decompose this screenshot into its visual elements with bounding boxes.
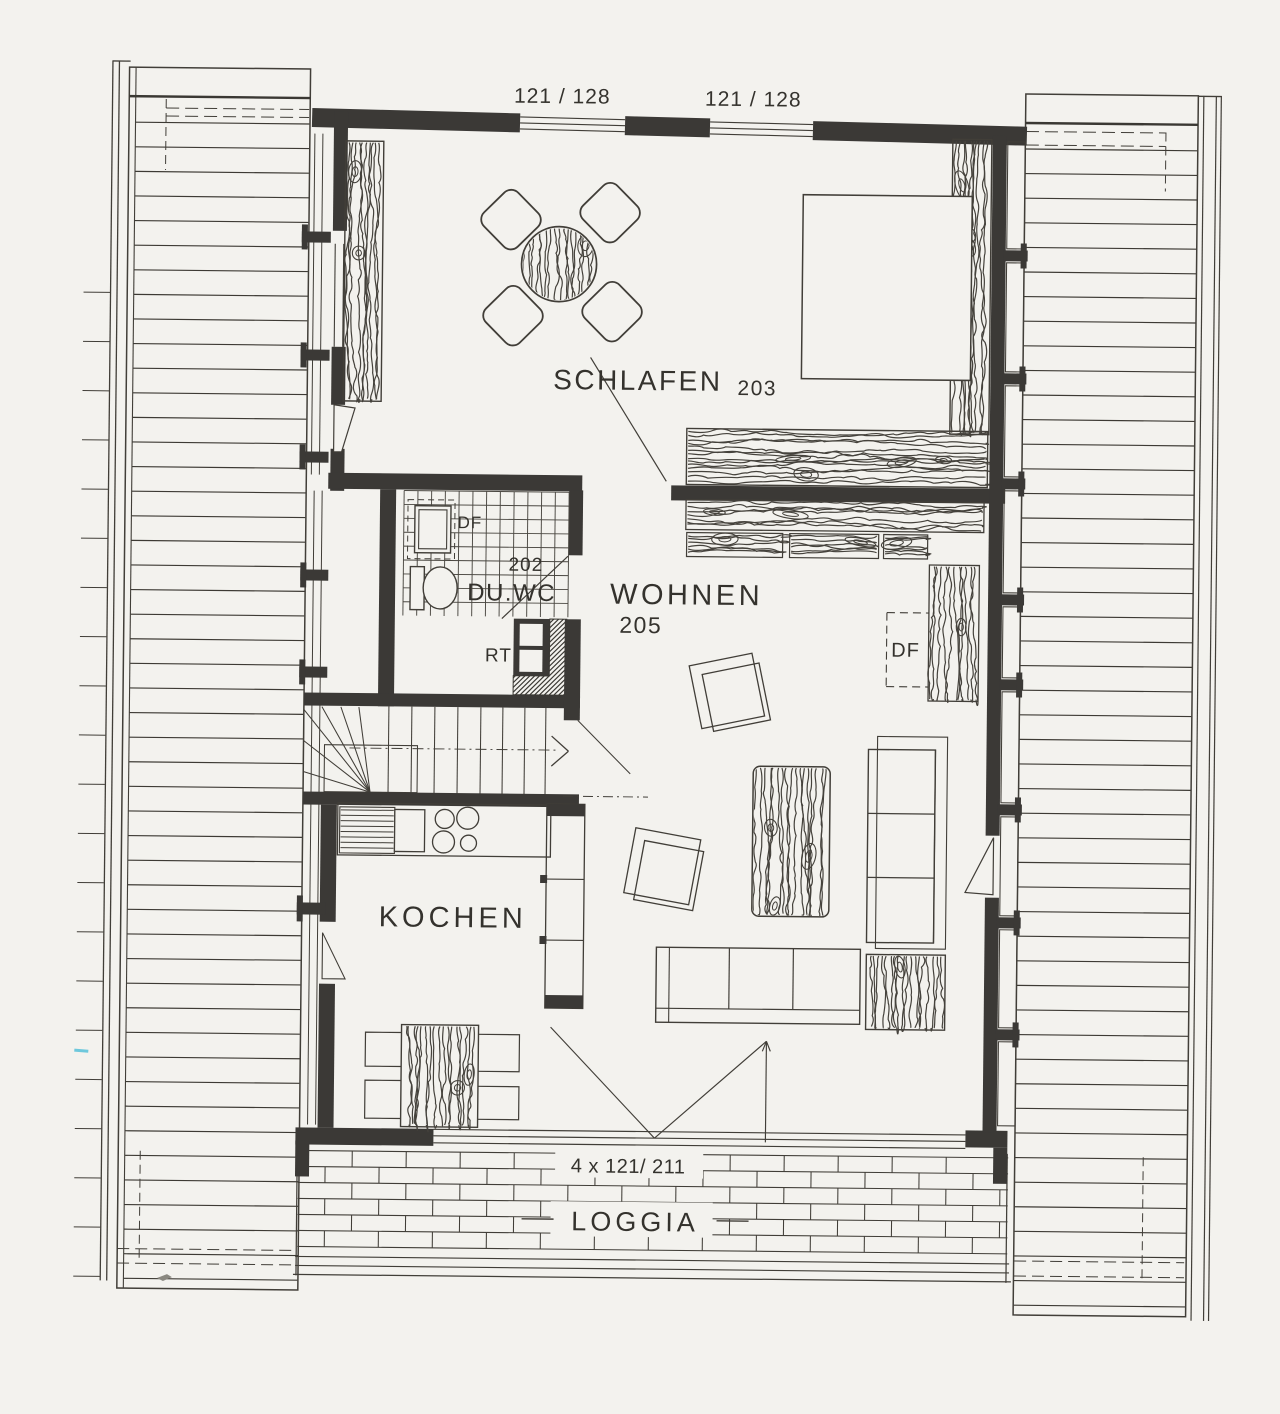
svg-text:DU.WC: DU.WC — [467, 579, 556, 607]
svg-text:121 / 128: 121 / 128 — [705, 88, 802, 112]
svg-text:202: 202 — [508, 555, 543, 576]
svg-text:WOHNEN: WOHNEN — [610, 579, 763, 613]
svg-text:4 x 121/ 211: 4 x 121/ 211 — [571, 1155, 686, 1178]
svg-text:121 / 128: 121 / 128 — [514, 85, 611, 109]
svg-text:205: 205 — [619, 612, 662, 638]
svg-text:DF: DF — [891, 640, 920, 662]
svg-text:RT: RT — [485, 645, 512, 666]
svg-text:KOCHEN: KOCHEN — [379, 901, 527, 935]
svg-text:LOGGIA: LOGGIA — [571, 1206, 699, 1237]
svg-text:203: 203 — [737, 377, 777, 400]
svg-text:SCHLAFEN: SCHLAFEN — [553, 364, 723, 397]
svg-text:DF: DF — [457, 513, 482, 532]
